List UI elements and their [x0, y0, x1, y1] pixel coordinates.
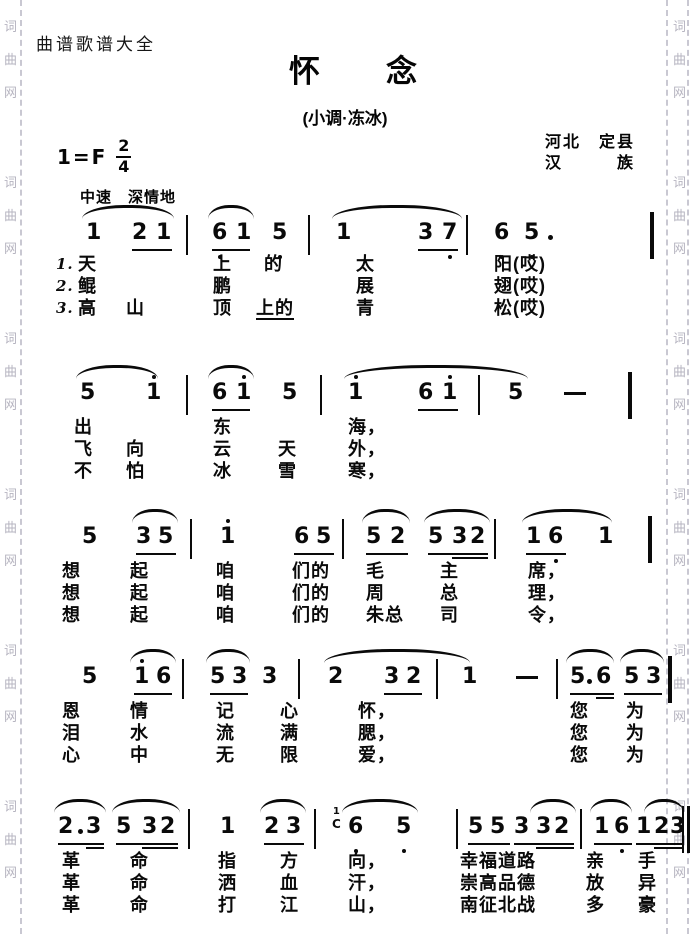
key-change-top: 1	[333, 806, 340, 817]
beam-line	[428, 553, 488, 555]
slur-arc	[362, 509, 410, 523]
note: 3	[86, 816, 101, 838]
note: 5	[468, 816, 483, 838]
lyric: 太	[356, 255, 375, 273]
lyric: 记	[216, 702, 235, 720]
note: 6	[614, 816, 629, 838]
beam-line	[264, 843, 304, 845]
barline	[188, 809, 190, 849]
note: 6	[418, 382, 433, 404]
note: 2	[470, 526, 485, 548]
slur-arc	[566, 649, 614, 663]
lyric: 革	[62, 852, 81, 870]
lyric: 飞	[74, 440, 93, 458]
slur-arc	[76, 365, 158, 379]
lyric: 命	[130, 874, 149, 892]
note: 3	[136, 526, 151, 548]
beam-line	[116, 843, 178, 845]
lyric: 起	[130, 584, 149, 602]
lyric: 豪	[638, 896, 657, 914]
note: 2	[554, 816, 569, 838]
note: 2	[132, 222, 147, 244]
octave-dot-high	[242, 375, 246, 379]
lyric: 恩	[62, 702, 81, 720]
beam-line	[210, 693, 248, 695]
lyric: 高	[78, 299, 97, 317]
beam-line	[366, 553, 408, 555]
note: 1	[526, 526, 541, 548]
lyric: 泪	[62, 724, 81, 742]
lyric: 放	[586, 874, 605, 892]
lyric: 咱	[216, 584, 235, 602]
lyric: 情	[130, 702, 149, 720]
lyric: 血	[280, 874, 299, 892]
lyric: 令，	[528, 606, 566, 624]
lyric: 鹏	[213, 277, 232, 295]
note: 3	[262, 666, 277, 688]
slur-arc	[522, 509, 612, 523]
slur-arc	[424, 509, 490, 523]
note: 1	[336, 222, 351, 244]
beam-line	[570, 693, 614, 695]
beam-line	[142, 847, 178, 849]
lyric: 心	[62, 746, 81, 764]
dash-note	[516, 676, 538, 679]
lyric: 洒	[218, 874, 237, 892]
barline	[436, 659, 438, 699]
lyric: 上的	[256, 299, 294, 320]
lyric: 无	[216, 746, 235, 764]
note: 3	[514, 816, 529, 838]
beam-line	[132, 249, 172, 251]
note: 6	[212, 382, 227, 404]
note: 6	[494, 222, 509, 244]
note: 1	[594, 816, 609, 838]
beam-line	[212, 249, 250, 251]
sheet-music-page: 词曲网词曲网词曲网词曲网词曲网词曲网词曲网词曲网词曲网词曲网词曲网词曲网 曲谱歌…	[0, 0, 690, 934]
barline-end	[668, 656, 672, 703]
note: 3	[646, 666, 661, 688]
lyric: 席，	[528, 562, 566, 580]
note: 3	[286, 816, 301, 838]
note: 1	[236, 382, 251, 404]
note: 1	[442, 382, 457, 404]
lyric: 想	[62, 562, 81, 580]
slur-arc	[332, 205, 462, 219]
lyric: 心	[280, 702, 299, 720]
slur-arc	[590, 799, 632, 813]
lyric: 指	[218, 852, 237, 870]
slur-arc	[130, 649, 176, 663]
barline	[466, 215, 468, 255]
barline	[456, 809, 458, 849]
note: 5	[82, 666, 97, 688]
lyric: 打	[218, 896, 237, 914]
octave-dot-low	[448, 255, 452, 259]
lyric: 南征北战	[460, 896, 536, 914]
lyric: 汗，	[348, 874, 386, 892]
barline	[298, 659, 300, 699]
barline	[342, 519, 344, 559]
lyric: 山	[126, 299, 145, 317]
octave-dot-low	[402, 849, 406, 853]
lyric: 怀，	[358, 702, 396, 720]
slur-arc	[112, 799, 180, 813]
note: 2	[58, 816, 73, 838]
lyric: 崇高品德	[460, 874, 536, 892]
note: 5	[524, 222, 539, 244]
lyric: 翅(哎)	[494, 277, 546, 295]
lyric: 们的	[292, 584, 330, 602]
lyric: 寒，	[348, 462, 386, 480]
lyric: 为	[626, 724, 645, 742]
note: 5	[316, 526, 331, 548]
lyric: 满	[280, 724, 299, 742]
note: 3	[142, 816, 157, 838]
note: 7	[442, 222, 457, 244]
note: 5	[158, 526, 173, 548]
note: 1	[236, 222, 251, 244]
lyric: 您	[570, 724, 589, 742]
beam-line	[452, 557, 488, 559]
slur-arc	[324, 649, 470, 663]
lyric: 中	[130, 746, 149, 764]
beam-line	[514, 843, 574, 845]
note: 5	[210, 666, 225, 688]
barline	[308, 215, 310, 255]
note: 1	[348, 382, 363, 404]
key-change-bottom: C	[332, 817, 341, 831]
lyric: 朱总	[366, 606, 404, 624]
note: 3	[536, 816, 551, 838]
note: 5	[624, 666, 639, 688]
slur-arc	[208, 365, 254, 379]
beam-line	[536, 847, 574, 849]
note: 5	[428, 526, 443, 548]
lyric: 山，	[348, 896, 386, 914]
barline	[494, 519, 496, 559]
note: 3	[384, 666, 399, 688]
lyric: 海，	[348, 418, 386, 436]
beam-line	[136, 553, 176, 555]
slur-arc	[208, 205, 254, 219]
barline-end	[648, 516, 652, 563]
note: 2	[328, 666, 343, 688]
slur-arc	[620, 649, 664, 663]
beam-line	[86, 847, 104, 849]
lyric: 想	[62, 606, 81, 624]
slur-arc	[342, 799, 418, 813]
beam-line	[526, 553, 566, 555]
note: 1	[86, 222, 101, 244]
octave-dot-high	[140, 659, 144, 663]
note: 6	[294, 526, 309, 548]
barline	[186, 375, 188, 415]
note: 6	[212, 222, 227, 244]
lyric: 主	[440, 562, 459, 580]
octave-dot-high	[448, 375, 452, 379]
barline	[186, 215, 188, 255]
note: 5	[570, 666, 585, 688]
note: 6	[548, 526, 563, 548]
lyric: 毛	[366, 562, 385, 580]
lyric: 松(哎)	[494, 299, 546, 317]
note: 2	[654, 816, 669, 838]
beam-line	[596, 697, 614, 699]
barline-end	[650, 212, 654, 259]
dash-note	[564, 392, 586, 395]
lyric: 命	[130, 852, 149, 870]
note: 5	[80, 382, 95, 404]
lyric: 怕	[126, 462, 145, 480]
lyric: 青	[356, 299, 375, 317]
lyric: 理，	[528, 584, 566, 602]
note: 1	[598, 526, 613, 548]
octave-dot-high	[226, 519, 230, 523]
slur-arc	[206, 649, 250, 663]
lyric: 们的	[292, 562, 330, 580]
lyric: 起	[130, 562, 149, 580]
beam-line	[468, 843, 510, 845]
lyric: 冰	[213, 462, 232, 480]
note: 3	[452, 526, 467, 548]
beam-line	[212, 409, 250, 411]
note: 5	[508, 382, 523, 404]
note: 6	[348, 816, 363, 838]
beam-line	[58, 843, 104, 845]
lyric: 向	[126, 440, 145, 458]
slur-arc	[82, 205, 174, 219]
augmentation-dot	[78, 829, 83, 834]
lyric: 出	[74, 418, 93, 436]
lyric: 限	[280, 746, 299, 764]
barline	[556, 659, 558, 699]
beam-line	[654, 847, 684, 849]
beam-line	[294, 553, 334, 555]
note: 5	[366, 526, 381, 548]
lyric: 腮，	[358, 724, 396, 742]
note: 1	[156, 222, 171, 244]
beam-line	[384, 693, 422, 695]
lyric: 江	[280, 896, 299, 914]
note: 5	[490, 816, 505, 838]
note: 2	[390, 526, 405, 548]
note: 5	[396, 816, 411, 838]
lyric: 幸福道路	[460, 852, 536, 870]
lyric: 异	[638, 874, 657, 892]
lyric: 流	[216, 724, 235, 742]
octave-dot-high	[354, 375, 358, 379]
note: 6	[156, 666, 171, 688]
octave-dot-low	[620, 849, 624, 853]
barline	[182, 659, 184, 699]
note: 5	[116, 816, 131, 838]
lyric: 司	[440, 606, 459, 624]
beam-line	[418, 409, 458, 411]
slur-arc	[54, 799, 106, 813]
slur-arc	[644, 799, 684, 813]
note: 1	[220, 816, 235, 838]
lyric: 咱	[216, 606, 235, 624]
note: 1	[636, 816, 651, 838]
lyric: 阳(哎)	[494, 255, 546, 273]
lyric: 周	[366, 584, 385, 602]
score: 121615137651.天上的太阳(哎)2.鲲鹏展翅(哎)3.高山顶上的青松(…	[0, 0, 690, 934]
note: 2	[160, 816, 175, 838]
slur-arc	[344, 365, 528, 379]
note: 2	[406, 666, 421, 688]
lyric: 外，	[348, 440, 386, 458]
lyric: 想	[62, 584, 81, 602]
octave-dot-high	[152, 375, 156, 379]
lyric: 多	[586, 896, 605, 914]
note: 3	[232, 666, 247, 688]
lyric: 上	[213, 255, 232, 273]
lyric: 亲	[586, 852, 605, 870]
note: 1	[146, 382, 161, 404]
verse-number: 3.	[56, 299, 74, 317]
barline	[320, 375, 322, 415]
lyric: 云	[213, 440, 232, 458]
barline	[314, 809, 316, 849]
augmentation-dot	[587, 679, 592, 684]
lyric: 命	[130, 896, 149, 914]
lyric: 天	[78, 255, 97, 273]
lyric: 爱，	[358, 746, 396, 764]
barline	[478, 375, 480, 415]
lyric: 方	[280, 852, 299, 870]
slur-arc	[132, 509, 178, 523]
note: 5	[272, 222, 287, 244]
verse-number: 1.	[56, 255, 74, 273]
beam-line	[636, 843, 684, 845]
note: 1	[134, 666, 149, 688]
barline	[190, 519, 192, 559]
note: 3	[418, 222, 433, 244]
lyric: 手	[638, 852, 657, 870]
barline-end	[628, 372, 632, 419]
lyric: 总	[440, 584, 459, 602]
lyric: 向，	[348, 852, 386, 870]
barline	[580, 809, 582, 849]
lyric: 水	[130, 724, 149, 742]
lyric: 不	[74, 462, 93, 480]
note: 1	[462, 666, 477, 688]
lyric: 鲲	[78, 277, 97, 295]
note: 6	[596, 666, 611, 688]
lyric: 为	[626, 702, 645, 720]
barline-final	[682, 806, 684, 853]
lyric: 为	[626, 746, 645, 764]
key-change-mark: 1C	[332, 806, 341, 831]
augmentation-dot	[548, 235, 553, 240]
beam-line	[134, 693, 172, 695]
lyric: 起	[130, 606, 149, 624]
beam-line	[624, 693, 662, 695]
slur-arc	[530, 799, 576, 813]
verse-number: 2.	[56, 277, 74, 295]
lyric: 您	[570, 702, 589, 720]
lyric: 您	[570, 746, 589, 764]
beam-line	[418, 249, 458, 251]
lyric: 东	[213, 418, 232, 436]
note: 5	[82, 526, 97, 548]
lyric: 咱	[216, 562, 235, 580]
slur-arc	[260, 799, 306, 813]
lyric: 展	[356, 277, 375, 295]
lyric: 雪	[278, 462, 297, 480]
lyric: 们的	[292, 606, 330, 624]
lyric: 革	[62, 896, 81, 914]
lyric: 顶	[213, 299, 232, 317]
lyric: 革	[62, 874, 81, 892]
note: 1	[220, 526, 235, 548]
note: 5	[282, 382, 297, 404]
lyric: 的	[264, 255, 283, 273]
beam-line	[594, 843, 632, 845]
lyric: 天	[278, 440, 297, 458]
note: 2	[264, 816, 279, 838]
